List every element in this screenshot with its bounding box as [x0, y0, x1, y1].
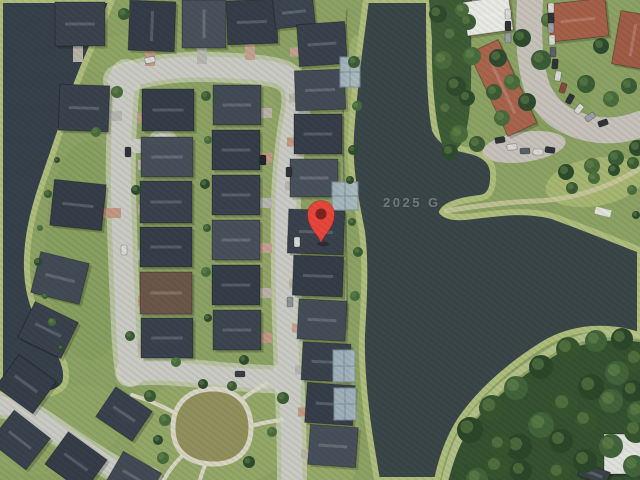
dock: [594, 207, 611, 218]
satellite-map-view[interactable]: 2025 G: [0, 0, 640, 480]
satellite-imagery-canvas: [0, 0, 640, 480]
